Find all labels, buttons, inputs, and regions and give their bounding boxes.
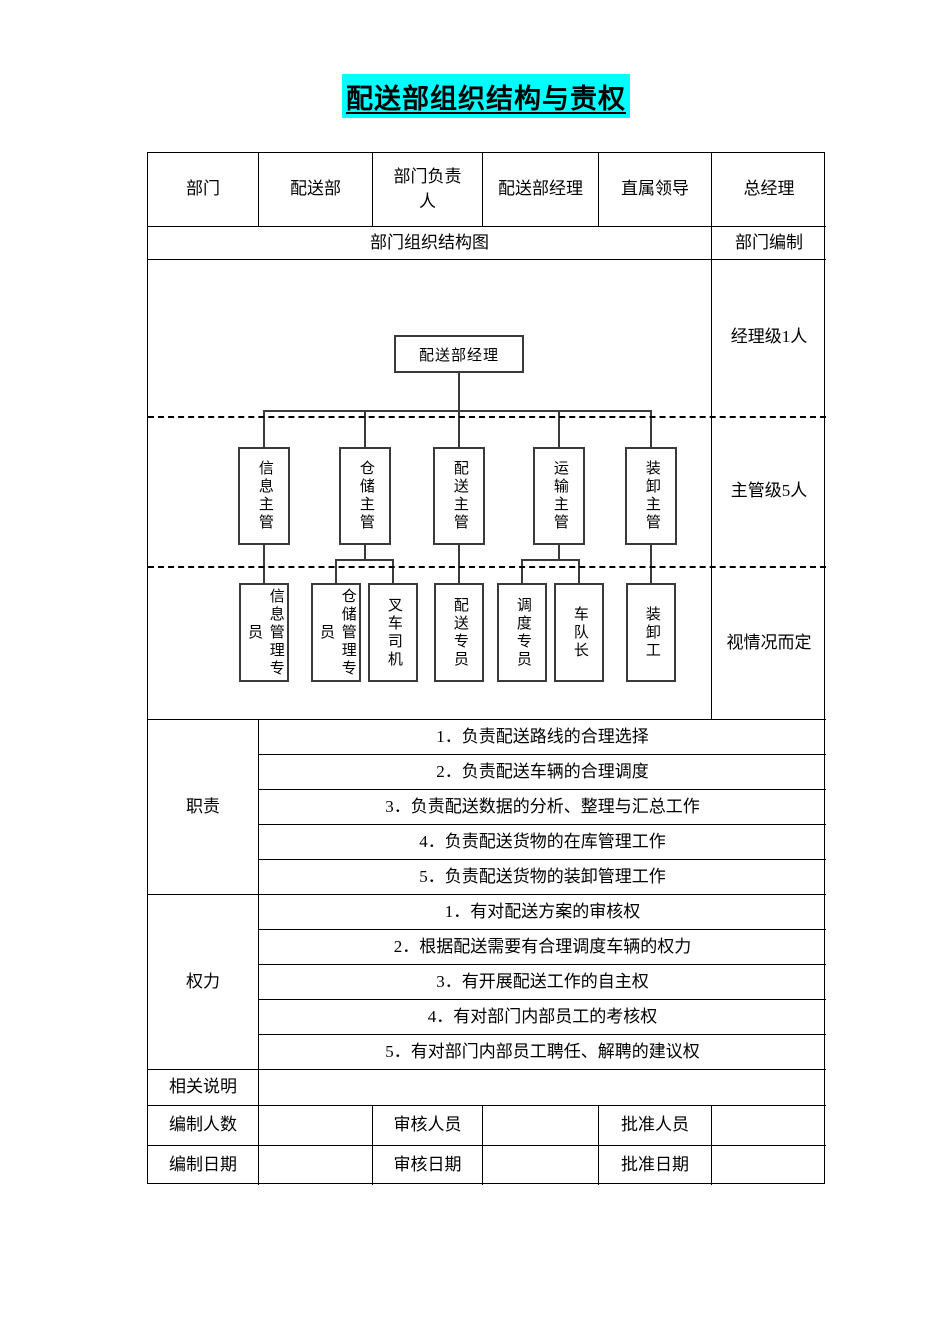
prepared-date-label-cell: 编制日期 bbox=[148, 1145, 258, 1185]
connector-delivery-staff bbox=[458, 545, 460, 583]
org-box-warehouse-supervisor-label: 仓储主管 bbox=[354, 449, 376, 543]
org-box-delivery-clerk-label: 配送专员 bbox=[448, 585, 470, 680]
org-chart-title-cell: 部门组织结构图 bbox=[148, 226, 711, 259]
org-box-loader-label: 装卸工 bbox=[640, 585, 662, 680]
dept-label-cell: 部门 bbox=[148, 153, 258, 226]
duty-item-1: 1．负责配送路线的合理选择 bbox=[258, 719, 826, 754]
prepared-date-value-cell bbox=[258, 1145, 372, 1185]
org-box-dispatch-clerk-label: 调度专员 bbox=[511, 585, 533, 680]
staffing-level-manager: 经理级1人 bbox=[712, 322, 826, 347]
dept-value-cell: 配送部 bbox=[258, 153, 372, 226]
staffing-header-cell: 部门编制 bbox=[711, 226, 826, 259]
page-title: 配送部组织结构与责权 bbox=[147, 74, 825, 118]
org-box-warehouse-clerk: 仓储管理专 员 bbox=[311, 583, 361, 682]
connector-transport-child1 bbox=[521, 559, 523, 583]
connector-transport-bracket bbox=[521, 559, 580, 561]
approve-date-value-cell bbox=[711, 1145, 826, 1185]
staffing-column: 经理级1人 主管级5人 视情况而定 bbox=[711, 259, 826, 719]
duty-item-2: 2．负责配送车辆的合理调度 bbox=[258, 754, 826, 789]
connector-warehouse-child1 bbox=[335, 559, 337, 583]
org-box-dispatch-clerk: 调度专员 bbox=[497, 583, 547, 682]
org-box-transport-supervisor-label: 运输主管 bbox=[548, 449, 570, 543]
org-box-forklift-driver: 叉车司机 bbox=[368, 583, 418, 682]
document-table: 部门 配送部 部门负责人 配送部经理 直属领导 总经理 部门组织结构图 部门编制 bbox=[147, 152, 825, 1184]
org-box-delivery-supervisor-label: 配送主管 bbox=[448, 449, 470, 543]
org-box-loading-supervisor-label: 装卸主管 bbox=[640, 449, 662, 543]
staffing-level-supervisor: 主管级5人 bbox=[712, 476, 826, 501]
org-box-info-clerk: 信息管理专 员 bbox=[239, 583, 289, 682]
power-item-5: 5．有对部门内部员工聘任、解聘的建议权 bbox=[258, 1034, 826, 1069]
direct-leader-label-cell: 直属领导 bbox=[598, 153, 711, 226]
org-chart: 配送部经理 信息主管 仓储主管 配送主管 运输主管 装卸主管 信息管理专 员 仓… bbox=[148, 259, 711, 719]
org-box-fleet-captain-label: 车队长 bbox=[568, 585, 590, 680]
direct-leader-value-cell: 总经理 bbox=[711, 153, 826, 226]
prepared-by-count-label-cell: 编制人数 bbox=[148, 1105, 258, 1145]
connector-info-staff bbox=[263, 545, 265, 583]
org-box-manager: 配送部经理 bbox=[394, 335, 524, 373]
duty-item-3: 3．负责配送数据的分析、整理与汇总工作 bbox=[258, 789, 826, 824]
duty-item-4: 4．负责配送货物的在库管理工作 bbox=[258, 824, 826, 859]
dashed-divider-manager-supervisor bbox=[148, 416, 826, 418]
prepared-by-count-value-cell bbox=[258, 1105, 372, 1145]
org-box-loader: 装卸工 bbox=[626, 583, 676, 682]
page-title-text: 配送部组织结构与责权 bbox=[342, 74, 630, 118]
dashed-divider-supervisor-staff bbox=[148, 566, 826, 568]
org-box-transport-supervisor: 运输主管 bbox=[533, 447, 585, 545]
org-box-forklift-driver-label: 叉车司机 bbox=[382, 585, 404, 680]
connector-loading-staff bbox=[650, 545, 652, 583]
duties-label-cell: 职责 bbox=[148, 719, 258, 894]
power-item-3: 3．有开展配送工作的自主权 bbox=[258, 964, 826, 999]
connector-transport-stub bbox=[558, 545, 560, 559]
org-box-info-supervisor: 信息主管 bbox=[238, 447, 290, 545]
org-box-fleet-captain: 车队长 bbox=[554, 583, 604, 682]
staffing-level-staff: 视情况而定 bbox=[712, 628, 826, 653]
approver-value-cell bbox=[711, 1105, 826, 1145]
approver-label-cell: 批准人员 bbox=[598, 1105, 711, 1145]
connector-manager-down bbox=[458, 373, 460, 410]
review-date-value-cell bbox=[482, 1145, 598, 1185]
org-box-loading-supervisor: 装卸主管 bbox=[625, 447, 677, 545]
org-box-info-clerk-label: 信息管理专 员 bbox=[242, 585, 286, 680]
reviewer-label-cell: 审核人员 bbox=[372, 1105, 482, 1145]
org-box-delivery-supervisor: 配送主管 bbox=[433, 447, 485, 545]
org-box-warehouse-supervisor: 仓储主管 bbox=[339, 447, 391, 545]
dept-head-label-cell: 部门负责人 bbox=[372, 153, 482, 226]
connector-warehouse-stub bbox=[364, 545, 366, 559]
duty-item-5: 5．负责配送货物的装卸管理工作 bbox=[258, 859, 826, 894]
notes-value-cell bbox=[258, 1069, 826, 1105]
org-box-warehouse-clerk-label: 仓储管理专 员 bbox=[314, 585, 358, 680]
powers-label-cell: 权力 bbox=[148, 894, 258, 1069]
dept-head-value-cell: 配送部经理 bbox=[482, 153, 598, 226]
notes-label-cell: 相关说明 bbox=[148, 1069, 258, 1105]
connector-warehouse-bracket bbox=[335, 559, 394, 561]
approve-date-label-cell: 批准日期 bbox=[598, 1145, 711, 1185]
org-box-delivery-clerk: 配送专员 bbox=[434, 583, 484, 682]
connector-transport-child2 bbox=[578, 559, 580, 583]
org-box-info-supervisor-label: 信息主管 bbox=[253, 449, 275, 543]
power-item-1: 1．有对配送方案的审核权 bbox=[258, 894, 826, 929]
connector-warehouse-child2 bbox=[392, 559, 394, 583]
document-page: 配送部组织结构与责权 部门 配送部 部门负责人 配送部经理 直属领导 总经理 部… bbox=[0, 0, 950, 1344]
reviewer-value-cell bbox=[482, 1105, 598, 1145]
review-date-label-cell: 审核日期 bbox=[372, 1145, 482, 1185]
power-item-2: 2．根据配送需要有合理调度车辆的权力 bbox=[258, 929, 826, 964]
power-item-4: 4．有对部门内部员工的考核权 bbox=[258, 999, 826, 1034]
